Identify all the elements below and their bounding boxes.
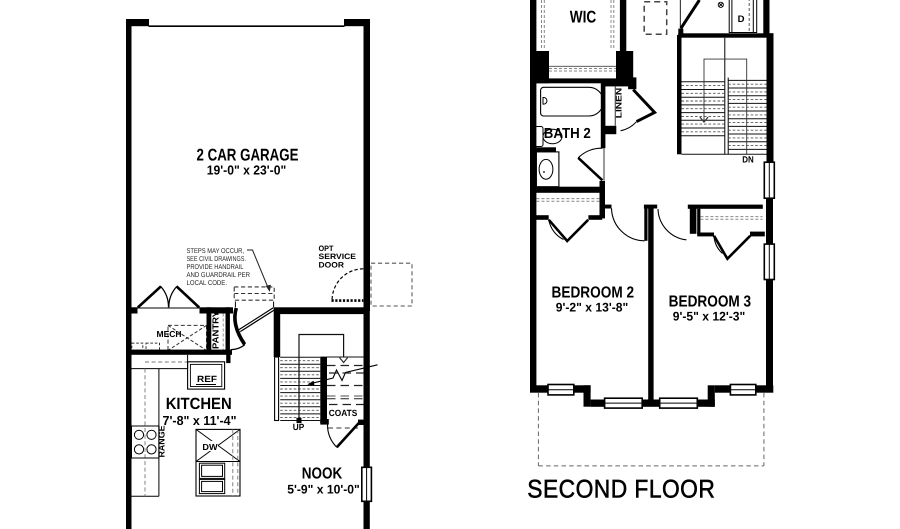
svg-text:19'-0" x 23'-0": 19'-0" x 23'-0" [207, 163, 287, 178]
svg-text:SECOND FLOOR: SECOND FLOOR [527, 476, 715, 504]
svg-text:AND GUARDRAIL PER: AND GUARDRAIL PER [187, 272, 251, 279]
svg-text:2 CAR GARAGE: 2 CAR GARAGE [197, 146, 299, 165]
svg-text:NOOK: NOOK [302, 466, 343, 483]
svg-text:PANTRY: PANTRY [211, 311, 221, 349]
svg-text:KITCHEN: KITCHEN [166, 395, 232, 413]
svg-text:COATS: COATS [329, 408, 358, 418]
svg-text:7'-8" x 11'-4": 7'-8" x 11'-4" [163, 413, 237, 428]
svg-text:PROVIDE HANDRAIL: PROVIDE HANDRAIL [187, 264, 244, 271]
svg-text:UP: UP [293, 422, 305, 432]
svg-text:BATH 2: BATH 2 [544, 126, 591, 142]
svg-text:9'-5" x 12'-3": 9'-5" x 12'-3" [673, 309, 746, 323]
svg-text:SEE CIVIL DRAWINGS.: SEE CIVIL DRAWINGS. [187, 256, 247, 263]
svg-text:WIC: WIC [570, 8, 597, 27]
svg-text:BEDROOM 3: BEDROOM 3 [669, 293, 752, 310]
svg-text:D: D [738, 14, 745, 25]
svg-text:5'-9" x 10'-0": 5'-9" x 10'-0" [287, 482, 360, 496]
svg-text:RANGE: RANGE [157, 425, 167, 457]
svg-text:REF: REF [197, 374, 218, 384]
svg-text:DW: DW [202, 442, 218, 452]
svg-text:STEPS MAY OCCUR,: STEPS MAY OCCUR, [187, 248, 245, 255]
svg-text:LINEN: LINEN [615, 88, 624, 119]
svg-text:9'-2" x 13'-8": 9'-2" x 13'-8" [556, 300, 629, 314]
svg-text:DOOR: DOOR [319, 261, 345, 270]
svg-text:LOCAL CODE.: LOCAL CODE. [187, 280, 228, 287]
svg-text:DN: DN [742, 155, 754, 165]
svg-text:BEDROOM 2: BEDROOM 2 [552, 284, 635, 301]
svg-text:MECH: MECH [157, 329, 182, 339]
